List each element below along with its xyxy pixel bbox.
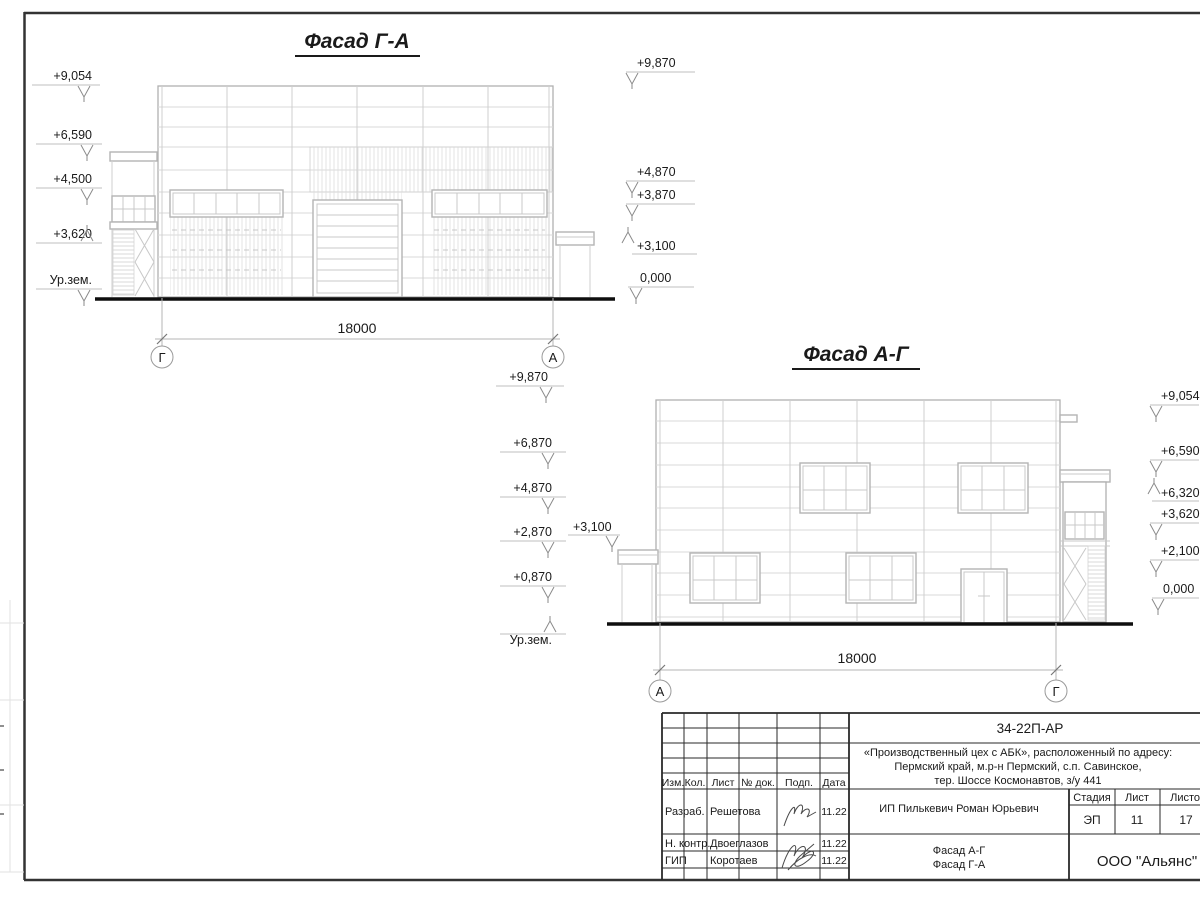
- elevation-mark-label: +6,590: [53, 128, 92, 142]
- role-developer: Разраб.: [665, 806, 705, 818]
- elevation-mark-label: +9,054: [1161, 389, 1200, 403]
- elevation-mark-label: +3,620: [53, 227, 92, 241]
- facade-ag-marks-right: +9,054 +6,590 +6,320 +3,620 +2,100 0,000: [1148, 389, 1200, 615]
- sheets-label: Листов: [1170, 792, 1200, 804]
- window-lower-left: [690, 553, 760, 603]
- role-ncontrol: Н. контр.: [665, 838, 710, 850]
- stair-tower-left: [110, 152, 157, 297]
- facade-ga-building: [95, 86, 615, 299]
- dimension-label: 18000: [338, 320, 377, 336]
- elevation-mark-label: +3,870: [637, 188, 676, 202]
- elevation-mark-label: +4,500: [53, 172, 92, 186]
- facade-ag-marks-left: +9,870 +6,870 +4,870 +2,870 +0,870 Ур.зе…: [496, 370, 620, 647]
- elevation-mark-label: +9,054: [53, 69, 92, 83]
- axis-letter: А: [549, 350, 558, 365]
- facade-ag-building: [607, 400, 1133, 624]
- elevation-mark-label: +9,870: [637, 56, 676, 70]
- sheet-title-line2: Фасад Г-А: [933, 859, 986, 871]
- axis-letter: А: [656, 684, 665, 699]
- elevation-mark-label: +3,100: [573, 520, 612, 534]
- window-upper-right: [958, 463, 1028, 513]
- elevation-mark-label: +2,100: [1161, 544, 1200, 558]
- facade-ag: Фасад А-Г: [496, 343, 1200, 702]
- sheet-number: 11: [1131, 813, 1144, 827]
- facade-ga-dimension: 18000 Г А: [151, 298, 564, 368]
- date-ncontrol: 11.22: [821, 838, 847, 850]
- sheet-label: Лист: [1125, 792, 1149, 804]
- elevation-mark-label: +6,320: [1161, 486, 1200, 500]
- elevation-mark-label: +6,870: [513, 436, 552, 450]
- axis-letter: Г: [158, 350, 165, 365]
- elevation-mark-label: +4,870: [513, 481, 552, 495]
- facade-ga-marks-left: +9,054 +6,590 +4,500 +3,620 Ур.зем.: [32, 69, 102, 306]
- col-header-data: Дата: [822, 777, 845, 789]
- signatures: [782, 805, 816, 870]
- client-name: ИП Пилькевич Роман Юрьевич: [879, 803, 1038, 815]
- stage-value: ЭП: [1083, 813, 1100, 827]
- role-gip: ГИП: [665, 855, 687, 867]
- elevation-mark-label: +9,870: [509, 370, 548, 384]
- ribbon-window-left: [170, 190, 283, 217]
- entrance-door: [961, 569, 1007, 623]
- stair-tower-right: [1060, 415, 1110, 622]
- name-gip: Коротаев: [710, 855, 758, 867]
- date-developer: 11.22: [821, 806, 847, 818]
- canopy-right: [556, 232, 594, 297]
- facade-ag-dimension: 18000 А Г: [649, 623, 1067, 702]
- facade-drawing-canvas: Фасад Г-А: [0, 0, 1200, 900]
- elevation-mark-label: +3,100: [637, 239, 676, 253]
- name-ncontrol: Двоеглазов: [710, 838, 769, 850]
- facade-ga: Фасад Г-А: [32, 30, 697, 368]
- col-header-podp: Подп.: [785, 777, 813, 789]
- axis-letter: Г: [1052, 684, 1059, 699]
- sectional-gate: [313, 200, 402, 297]
- col-header-doc: № док.: [741, 777, 775, 789]
- title-block: 34-22П-АР «Производственный цех с АБК», …: [662, 713, 1200, 880]
- elevation-mark-label: Ур.зем.: [50, 273, 92, 287]
- facade-ga-title: Фасад Г-А: [304, 30, 409, 53]
- window-upper-left: [800, 463, 870, 513]
- drawing-sheet: Фасад Г-А: [0, 0, 1200, 900]
- elevation-mark-label: +0,870: [513, 570, 552, 584]
- window-lower-middle: [846, 553, 916, 603]
- sheets-total: 17: [1179, 813, 1193, 827]
- name-developer: Решетова: [710, 806, 761, 818]
- elevation-mark-label: Ур.зем.: [510, 633, 552, 647]
- elevation-mark-label: 0,000: [640, 271, 671, 285]
- elevation-mark-label: +3,620: [1161, 507, 1200, 521]
- date-gip: 11.22: [821, 855, 847, 867]
- stage-label: Стадия: [1073, 792, 1111, 804]
- facade-ga-marks-right: +9,870 +4,870 +3,870 +3,100 0,000: [622, 56, 697, 304]
- doc-code: 34-22П-АР: [997, 721, 1064, 736]
- canopy-left: [618, 550, 658, 622]
- project-address-line3: тер. Шоссе Космонавтов, з/у 441: [934, 775, 1101, 787]
- project-address-line1: «Производственный цех с АБК», расположен…: [864, 747, 1172, 759]
- dimension-label: 18000: [838, 650, 877, 666]
- elevation-mark-label: +6,590: [1161, 444, 1200, 458]
- project-address-line2: Пермский край, м.р-н Пермский, с.п. Сави…: [894, 761, 1141, 773]
- elevation-mark-label: +2,870: [513, 525, 552, 539]
- organization-name: ООО "Альянс": [1097, 853, 1197, 870]
- left-margin-artifacts: [0, 600, 24, 872]
- col-header-kol: Кол.: [685, 777, 706, 789]
- col-header-list: Лист: [712, 777, 735, 789]
- elevation-mark-label: 0,000: [1163, 582, 1194, 596]
- elevation-mark-label: +4,870: [637, 165, 676, 179]
- sheet-title-line1: Фасад А-Г: [933, 845, 986, 857]
- facade-ag-title: Фасад А-Г: [803, 343, 909, 366]
- ribbon-window-right: [432, 190, 547, 217]
- col-header-izm: Изм.: [662, 777, 685, 789]
